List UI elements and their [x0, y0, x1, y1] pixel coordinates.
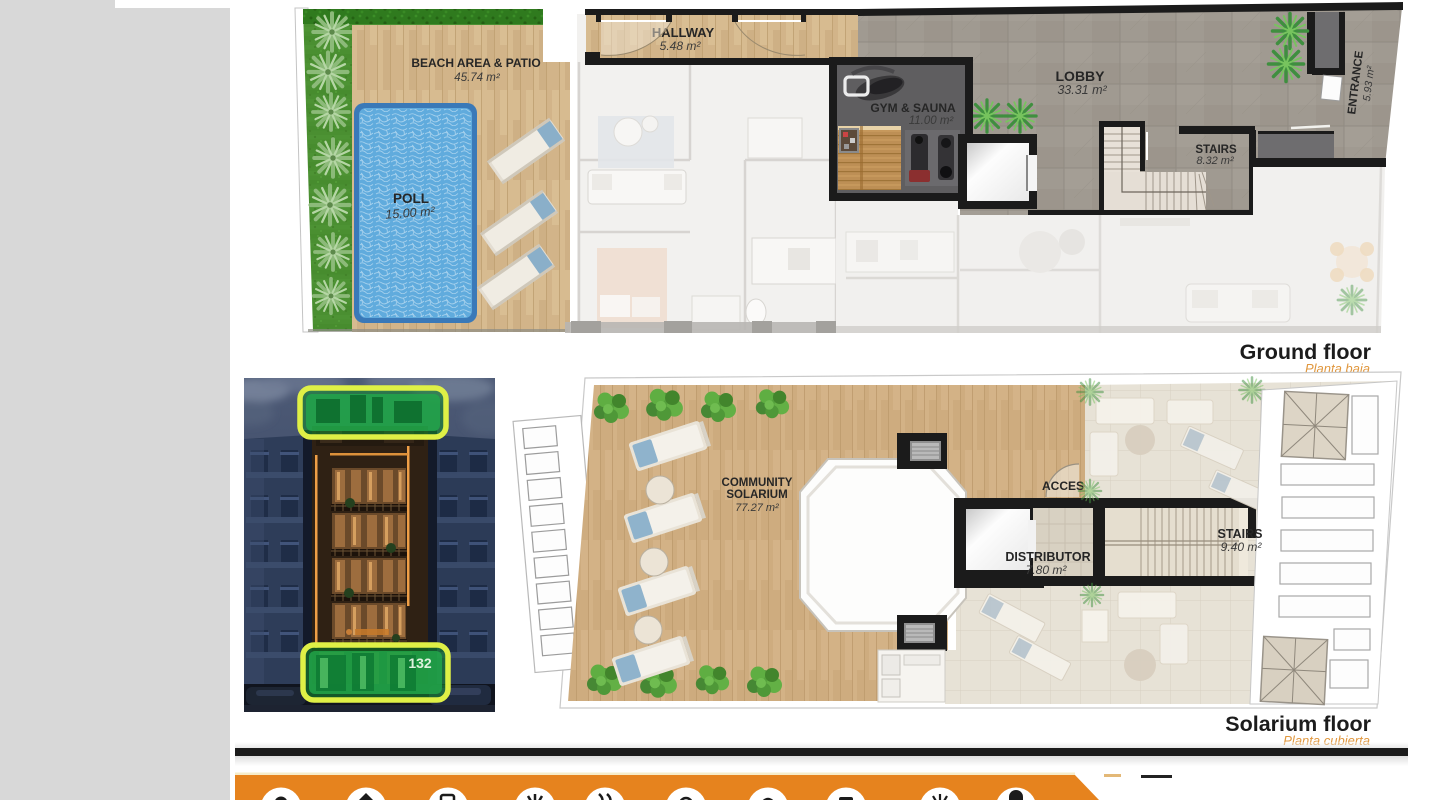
- svg-text:8.32 m²: 8.32 m²: [1196, 155, 1234, 167]
- svg-text:BEACH AREA & PATIO: BEACH AREA & PATIO: [411, 56, 540, 70]
- svg-text:SOLARIUM: SOLARIUM: [726, 489, 787, 501]
- svg-text:45.74 m²: 45.74 m²: [454, 72, 501, 84]
- svg-text:132: 132: [408, 655, 432, 671]
- svg-text:COMMUNITY: COMMUNITY: [722, 477, 793, 489]
- svg-text:GYM & SAUNA: GYM & SAUNA: [870, 101, 956, 115]
- svg-text:77.27 m²: 77.27 m²: [735, 502, 779, 514]
- svg-text:7.80 m²: 7.80 m²: [1026, 563, 1068, 577]
- svg-text:5.48 m²: 5.48 m²: [660, 39, 702, 53]
- svg-text:11.00 m²: 11.00 m²: [909, 115, 955, 127]
- svg-text:9.40 m²: 9.40 m²: [1221, 540, 1263, 554]
- svg-text:DISTRIBUTOR: DISTRIBUTOR: [1005, 550, 1090, 564]
- svg-text:POLL: POLL: [393, 191, 429, 206]
- svg-text:STAIRS: STAIRS: [1218, 527, 1263, 541]
- svg-text:33.31 m²: 33.31 m²: [1057, 83, 1107, 97]
- svg-text:LOBBY: LOBBY: [1056, 68, 1106, 84]
